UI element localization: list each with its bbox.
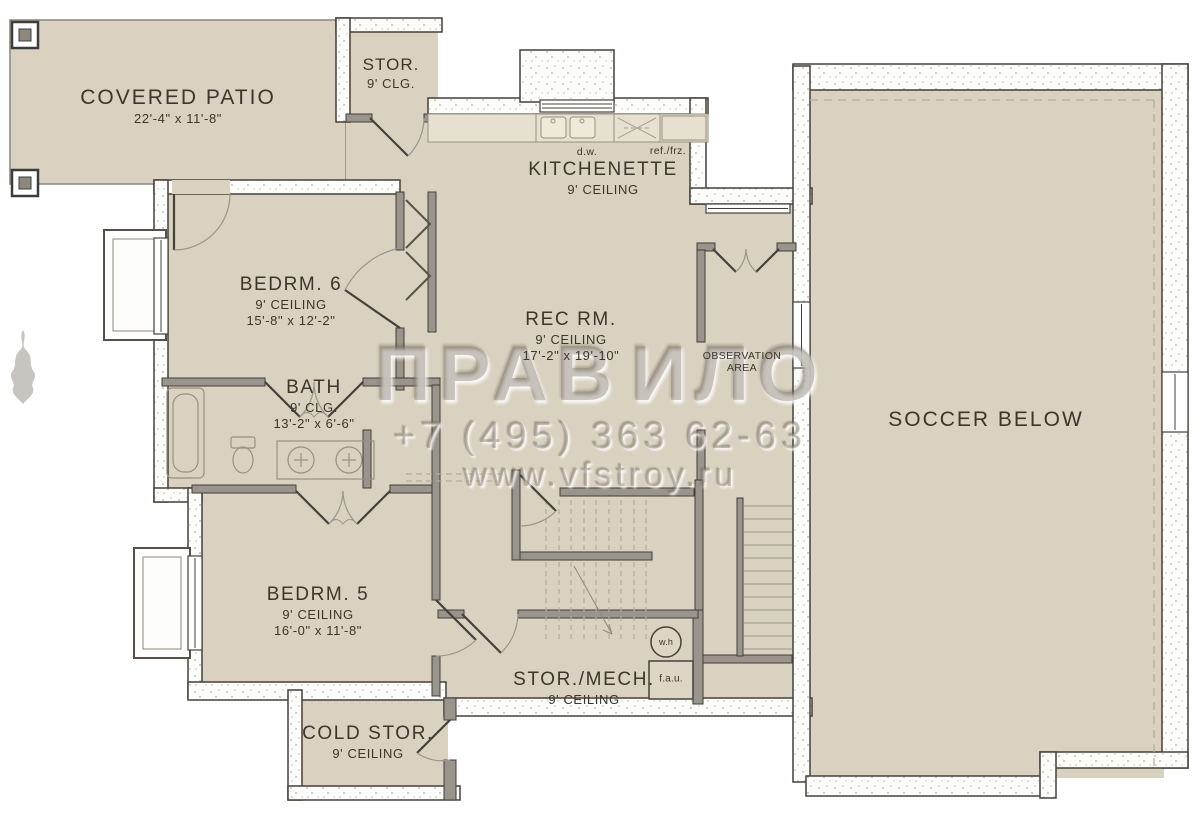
sink-icon: [541, 117, 566, 138]
room-label-kitchenette: KITCHENETTE 9' CEILING: [528, 159, 678, 197]
label-fau: f.a.u.: [659, 674, 682, 685]
room-label-stor: STOR. 9' CLG.: [363, 55, 420, 91]
room-label-observation-area: OBSERVATION AREA: [703, 350, 782, 374]
room-label-stor-mech: STOR./MECH. 9' CEILING: [513, 669, 655, 707]
label-ref-frz: ref./frz.: [650, 145, 686, 157]
room-label-bedrm5: BEDRM. 5 9' CEILING 16'-0" x 11'-8": [267, 584, 370, 638]
room-label-soccer-below: SOCCER BELOW: [888, 408, 1084, 432]
floor-plan: ПРАВ ИЛО +7 (495) 363 62-63 www.vfstroy.…: [0, 0, 1200, 834]
room-label-rec-rm: REC RM. 9' CEILING 17'-2" x 19'-10": [523, 309, 620, 363]
sink-icon: [570, 117, 595, 138]
room-label-cold-stor: COLD STOR. 9' CEILING: [302, 723, 434, 761]
room-label-covered-patio: COVERED PATIO 22'-4" x 11'-8": [80, 86, 276, 126]
label-water-heater: w.h: [659, 637, 673, 647]
kitchen-counter: [428, 114, 708, 142]
label-dishwasher: d.w.: [577, 146, 597, 158]
room-label-bath: BATH 9' CLG. 13'-2" x 6'-6": [273, 377, 354, 431]
room-label-bedrm6: BEDRM. 6 9' CEILING 15'-8" x 12'-2": [240, 274, 343, 328]
fridge-icon: [662, 116, 706, 140]
